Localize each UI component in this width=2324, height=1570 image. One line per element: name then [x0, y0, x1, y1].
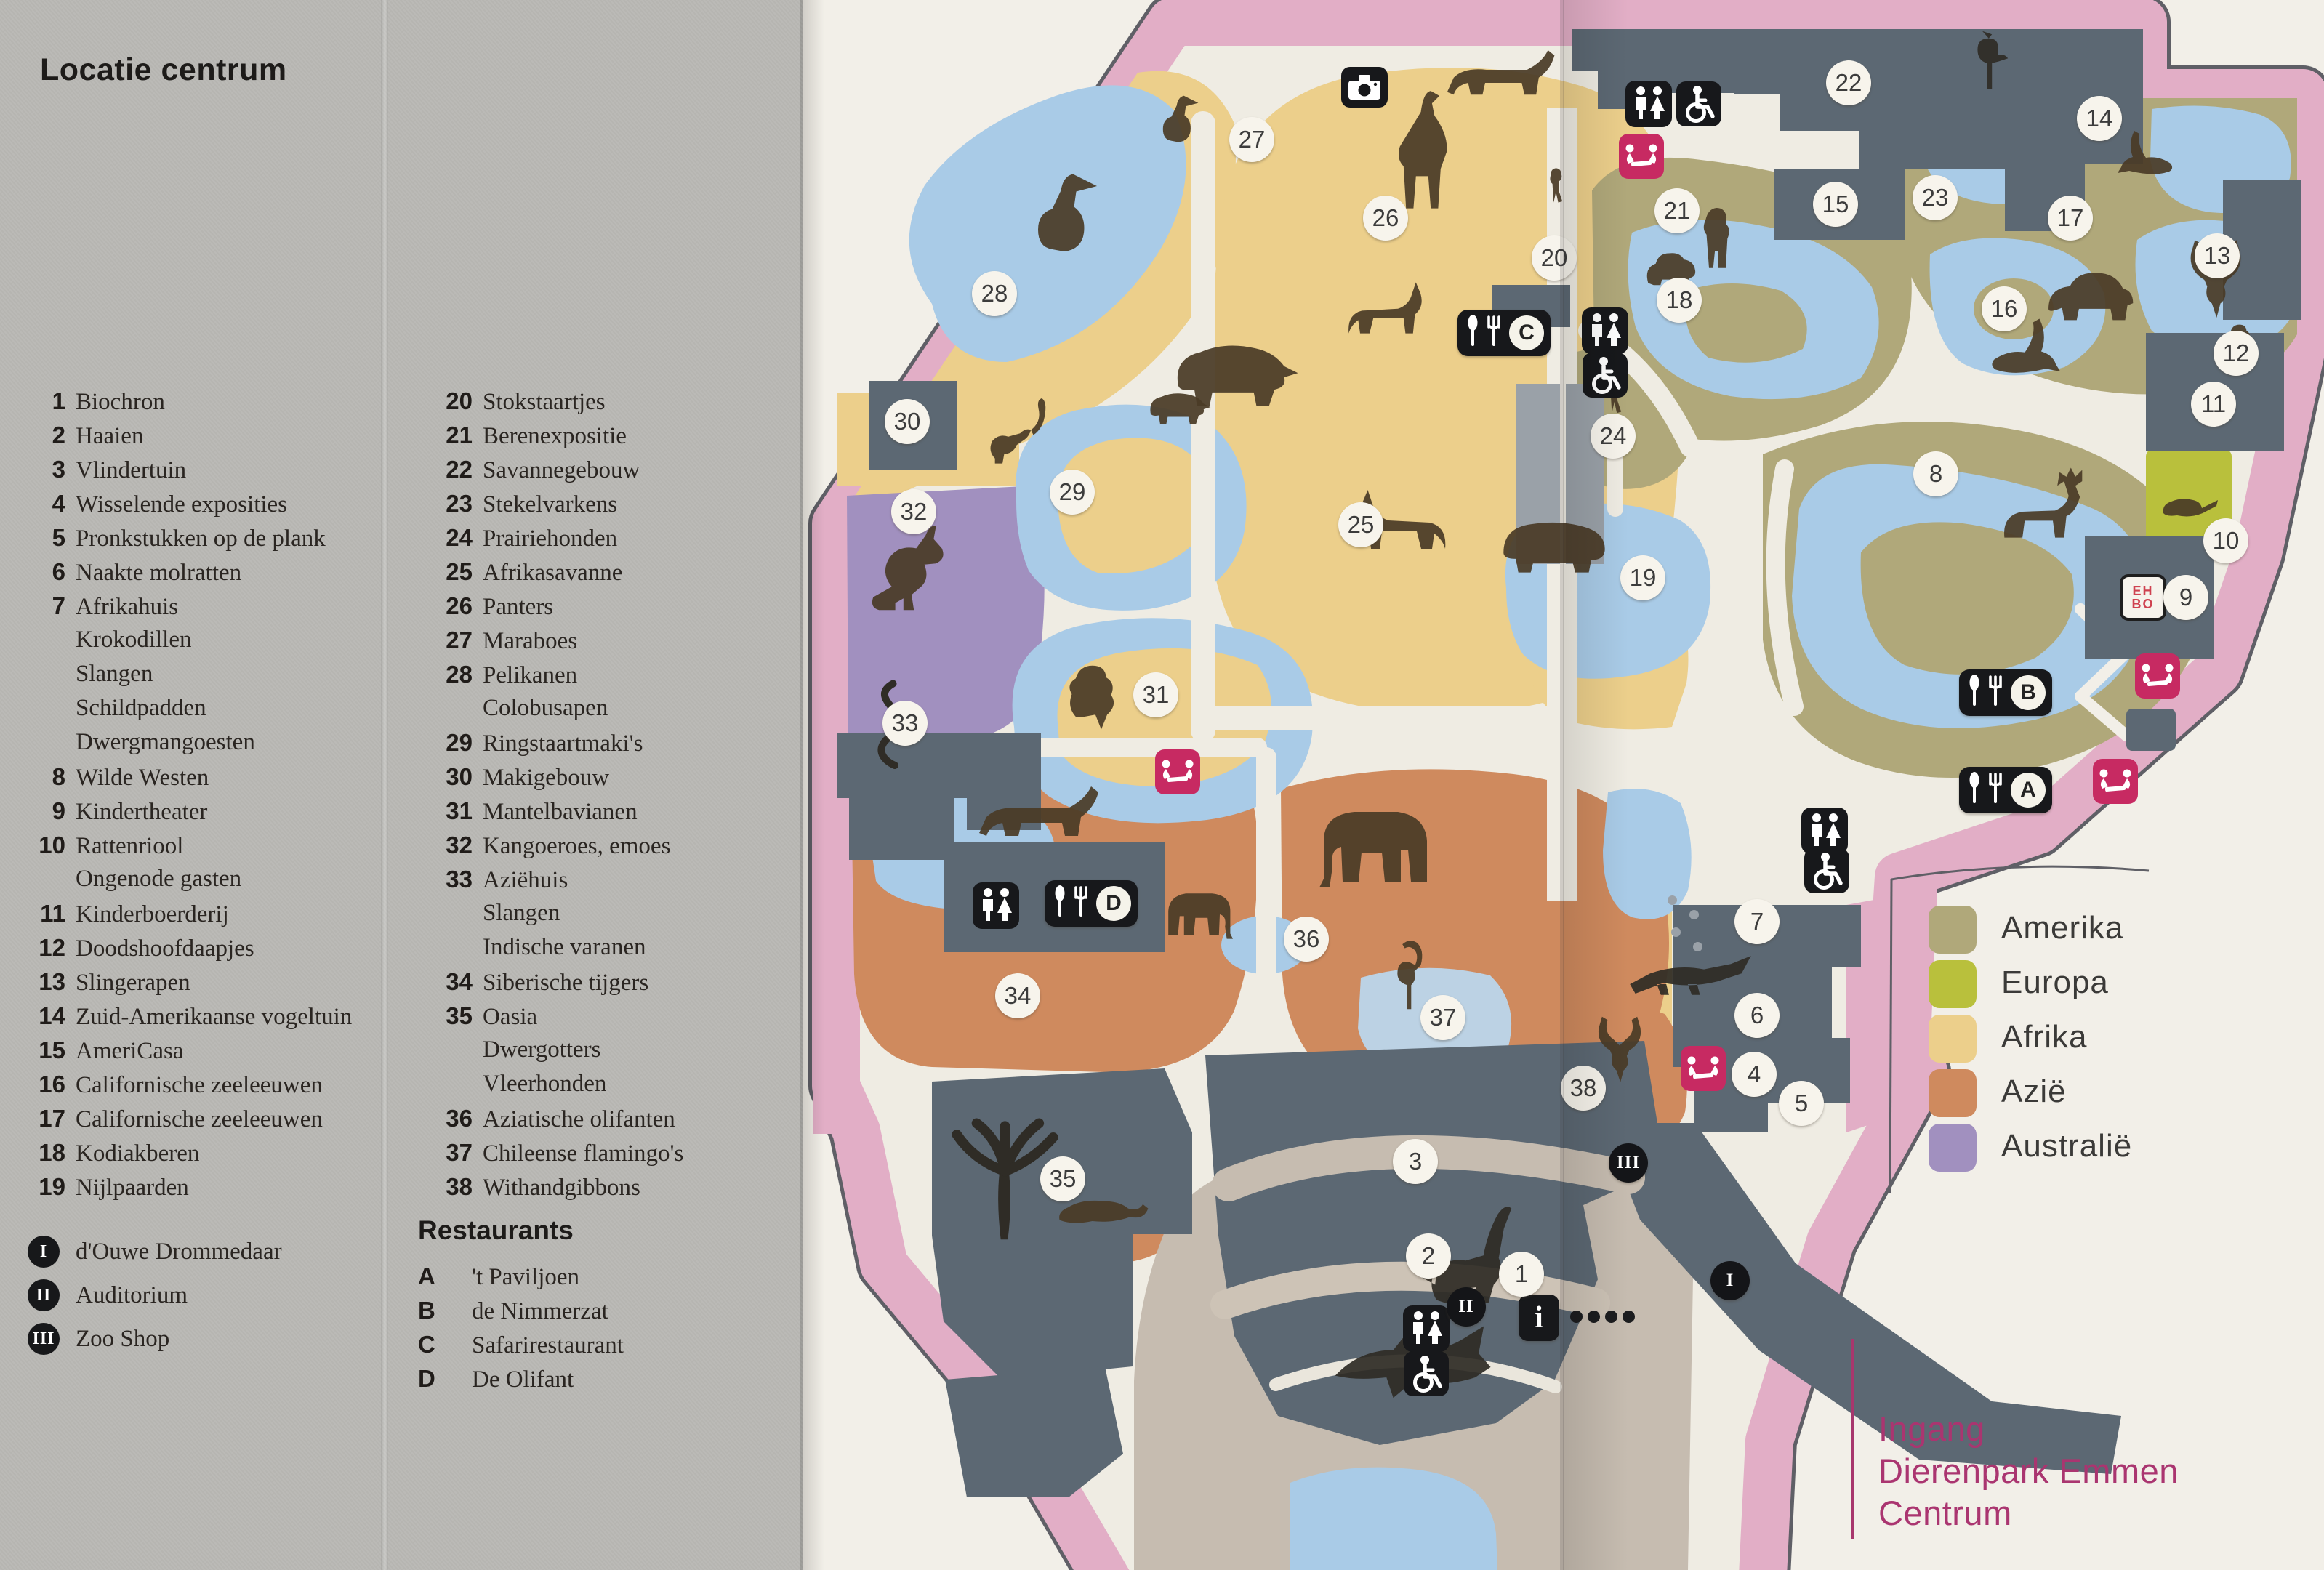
- legend-item: 1Biochron: [28, 384, 391, 418]
- map-marker-32: 32: [891, 489, 936, 534]
- continent-label: Afrika: [2001, 1019, 2087, 1055]
- map-marker-38: 38: [1561, 1066, 1606, 1111]
- legend-subitem-label: Slangen: [483, 896, 560, 930]
- entrance-text-line: Centrum: [1878, 1493, 2012, 1533]
- map-marker-29: 29: [1050, 470, 1095, 515]
- map-marker-number: 8: [1929, 460, 1942, 488]
- legend-item: 13Slingerapen: [28, 965, 391, 999]
- legend-item-number: 1: [28, 384, 65, 418]
- legend-item: 2Haaien: [28, 418, 391, 452]
- ehbo-text: EH: [2132, 584, 2153, 597]
- map-marker-number: 17: [2057, 204, 2084, 232]
- restaurant-label: Safarirestaurant: [472, 1329, 624, 1363]
- continent-label: Amerika: [2001, 910, 2123, 946]
- ehbo-text: BO: [2132, 597, 2155, 611]
- legend-item-number: 16: [28, 1067, 65, 1101]
- map-marker-number: 32: [901, 498, 928, 526]
- map-marker-number: 7: [1750, 908, 1764, 935]
- map-marker-37: 37: [1420, 995, 1465, 1040]
- map-marker-1: 1: [1499, 1252, 1544, 1297]
- legend-item-number: 37: [418, 1135, 473, 1170]
- continent-swatch-australië: [1929, 1124, 1977, 1172]
- legend-item-number: 9: [28, 794, 65, 828]
- legend-item-number: 35: [418, 999, 473, 1033]
- map-facility-marker-II: II: [1447, 1287, 1486, 1327]
- map-marker-4: 4: [1732, 1052, 1777, 1097]
- legend-item-label: Siberische tijgers: [483, 966, 648, 1000]
- legend-item-number: 2: [28, 418, 65, 452]
- legend-subitem-label: Dwergotters: [483, 1033, 601, 1067]
- legend-item: 20Stokstaartjes: [418, 384, 796, 418]
- restaurant-item: Bde Nimmerzat: [418, 1293, 624, 1327]
- map-marker-number: 26: [1372, 204, 1399, 232]
- baby-change-icon: [2135, 653, 2180, 699]
- zoo-brochure: CDBAiEHBO 123456789101112131415161718192…: [0, 0, 2324, 1570]
- stepping-stone-dot: [1689, 910, 1699, 919]
- continent-swatch-europa: [1929, 960, 1977, 1008]
- restaurant-item: A't Paviljoen: [418, 1259, 624, 1293]
- map-marker-number: 25: [1348, 511, 1375, 539]
- wheelchair-icon: [1583, 353, 1628, 398]
- legend-item-number: 12: [28, 930, 65, 965]
- map-marker-11: 11: [2191, 382, 2236, 427]
- legend-subitem: Dwergmangoesten: [28, 725, 391, 760]
- restaurants-title: Restaurants: [418, 1215, 624, 1246]
- restaurant-letter: C: [418, 1327, 451, 1361]
- map-marker-number: 37: [1430, 1004, 1457, 1031]
- toilets-icon: [1801, 808, 1848, 854]
- path-dot: [1605, 1311, 1617, 1323]
- continent-label: Azië: [2001, 1074, 2067, 1110]
- toilets-icon: [1582, 307, 1628, 354]
- baby-change-icon: [1681, 1046, 1726, 1091]
- legend-item: 28Pelikanen: [418, 657, 796, 691]
- facility-label: Zoo Shop: [76, 1326, 169, 1353]
- legend-item: 33Aziëhuis: [418, 862, 796, 896]
- restaurant-d-icon: D: [1045, 880, 1138, 927]
- map-marker-7: 7: [1734, 899, 1780, 944]
- camera-icon: [1341, 67, 1388, 108]
- legend-item: 3Vlindertuin: [28, 452, 391, 486]
- legend-item-label: Aziatische olifanten: [483, 1103, 675, 1137]
- legend-item-label: Zuid-Amerikaanse vogeltuin: [76, 1000, 352, 1034]
- legend-item: 8Wilde Westen: [28, 760, 391, 794]
- cutlery-icon: [1464, 314, 1505, 353]
- baby-change-icon: [2093, 759, 2138, 804]
- map-facility-marker-I: I: [1710, 1261, 1750, 1300]
- legend-item-label: Rattenriool: [76, 829, 183, 863]
- legend-item-number: 20: [418, 384, 473, 418]
- legend-item: 7Afrikahuis: [28, 589, 391, 623]
- legend-item-number: 33: [418, 862, 473, 896]
- info-icon: i: [1519, 1295, 1559, 1341]
- legend-column-1: 1Biochron2Haaien3Vlindertuin4Wisselende …: [28, 384, 391, 1204]
- legend-item-label: Ringstaartmaki's: [483, 727, 643, 761]
- map-facility-number: III: [1617, 1153, 1640, 1173]
- map-marker-31: 31: [1133, 672, 1178, 717]
- toilets-icon: [1625, 81, 1672, 127]
- legend-item: 37Chileense flamingo's: [418, 1135, 796, 1170]
- map-marker-18: 18: [1657, 278, 1702, 323]
- legend-item-label: Slingerapen: [76, 966, 190, 1000]
- map-marker-30: 30: [885, 399, 930, 444]
- ehbo-icon: EHBO: [2120, 574, 2166, 621]
- legend-item-label: Californische zeeleeuwen: [76, 1068, 323, 1103]
- map-marker-number: 36: [1293, 925, 1320, 953]
- toilets-icon: [1403, 1305, 1450, 1352]
- map-marker-19: 19: [1620, 555, 1665, 600]
- legend-subitem-label: Slangen: [76, 657, 153, 691]
- legend-subitem: Dwergotters: [418, 1033, 796, 1067]
- map-marker-25: 25: [1338, 502, 1383, 547]
- legend-item-label: Kindertheater: [76, 795, 207, 829]
- legend-item: 32Kangoeroes, emoes: [418, 828, 796, 862]
- map-marker-26: 26: [1363, 196, 1408, 241]
- restaurant-a-icon: A: [1959, 767, 2052, 813]
- map-marker-number: 35: [1050, 1165, 1077, 1193]
- restaurant-label: De Olifant: [472, 1363, 574, 1397]
- legend-column-2: 20Stokstaartjes21Berenexpositie22Savanne…: [418, 384, 796, 1204]
- legend-item-label: Withandgibbons: [483, 1171, 640, 1205]
- facility-roman-badge: I: [28, 1236, 60, 1268]
- legend-item: 5Pronkstukken op de plank: [28, 520, 391, 555]
- legend-item-label: Doodshoofdaapjes: [76, 932, 254, 966]
- facilities-list: Id'Ouwe DrommedaarIIAuditoriumIIIZoo Sho…: [28, 1230, 282, 1361]
- facility-item: IIAuditorium: [28, 1273, 282, 1317]
- facility-label: d'Ouwe Drommedaar: [76, 1239, 282, 1265]
- map-marker-number: 16: [1991, 295, 2018, 323]
- legend-item-label: Biochron: [76, 385, 165, 419]
- legend-item-number: 7: [28, 589, 65, 623]
- map-marker-20: 20: [1532, 235, 1577, 281]
- restaurant-letter: B: [418, 1293, 451, 1327]
- restaurant-letter: A: [418, 1259, 451, 1293]
- legend-item-number: 18: [28, 1135, 65, 1170]
- legend-item-label: Haaien: [76, 419, 143, 454]
- legend-subitem: Slangen: [28, 657, 391, 691]
- map-marker-13: 13: [2195, 233, 2240, 278]
- map-marker-number: 22: [1836, 69, 1862, 97]
- legend-item-label: Kodiakberen: [76, 1137, 199, 1171]
- map-marker-21: 21: [1654, 188, 1700, 233]
- legend-item-label: Naakte molratten: [76, 556, 241, 590]
- restaurant-letter-plate: C: [1509, 315, 1544, 350]
- legend-subitem: Slangen: [418, 896, 796, 930]
- map-marker-36: 36: [1284, 917, 1329, 962]
- legend-item-number: 10: [28, 828, 65, 862]
- facility-roman-badge: III: [28, 1323, 60, 1355]
- cutlery-icon: [1966, 674, 2006, 712]
- facility-label: Auditorium: [76, 1282, 188, 1309]
- legend-item: 15AmeriCasa: [28, 1033, 391, 1067]
- map-marker-33: 33: [882, 701, 928, 746]
- map-marker-22: 22: [1826, 60, 1871, 105]
- map-marker-number: 11: [2201, 390, 2226, 418]
- map-marker-number: 21: [1664, 197, 1691, 225]
- cutlery-icon: [1966, 771, 2006, 810]
- wheelchair-icon: [1804, 848, 1849, 893]
- legend-item-label: Panters: [483, 590, 553, 624]
- legend-subitem-label: Vleerhonden: [483, 1067, 606, 1101]
- legend-item-number: 15: [28, 1033, 65, 1067]
- map-marker-number: 33: [892, 709, 919, 737]
- map-marker-number: 10: [2213, 527, 2240, 555]
- map-marker-number: 27: [1239, 126, 1266, 153]
- map-marker-number: 24: [1600, 422, 1627, 450]
- map-marker-24: 24: [1591, 414, 1636, 459]
- continent-swatch-amerika: [1929, 906, 1977, 954]
- legend-item-number: 4: [28, 486, 65, 520]
- legend-subitem-label: Ongenode gasten: [76, 862, 241, 896]
- baby-change-icon: [1155, 749, 1200, 794]
- legend-item: 10Rattenriool: [28, 828, 391, 862]
- legend-item: 17Californische zeeleeuwen: [28, 1101, 391, 1135]
- legend-item: 25Afrikasavanne: [418, 555, 796, 589]
- legend-item-label: AmeriCasa: [76, 1034, 183, 1068]
- path-dot: [1570, 1311, 1583, 1323]
- legend-item-label: Wilde Westen: [76, 761, 209, 795]
- map-marker-6: 6: [1734, 993, 1780, 1038]
- restaurant-letter-plate: D: [1096, 886, 1131, 921]
- map-marker-5: 5: [1779, 1081, 1824, 1126]
- legend-item: 18Kodiakberen: [28, 1135, 391, 1170]
- map-marker-number: 19: [1630, 564, 1657, 592]
- map-marker-number: 34: [1005, 982, 1032, 1010]
- legend-item: 35Oasia: [418, 999, 796, 1033]
- facility-item: Id'Ouwe Drommedaar: [28, 1230, 282, 1273]
- map-marker-number: 31: [1143, 681, 1170, 709]
- map-marker-8: 8: [1913, 451, 1958, 496]
- map-marker-3: 3: [1393, 1139, 1438, 1184]
- legend-subitem-label: Dwergmangoesten: [76, 725, 255, 760]
- legend-item-label: Kangoeroes, emoes: [483, 829, 670, 863]
- continent-swatch-azië: [1929, 1069, 1977, 1117]
- legend-item-number: 14: [28, 999, 65, 1033]
- map-marker-number: 9: [2179, 584, 2192, 611]
- legend-panel: Locatie centrum 1Biochron2Haaien3Vlinder…: [0, 0, 803, 1570]
- map-marker-28: 28: [972, 271, 1017, 316]
- restaurant-letter: D: [418, 1361, 451, 1396]
- legend-item-number: 22: [418, 452, 473, 486]
- restaurant-label: de Nimmerzat: [472, 1295, 608, 1329]
- map-marker-10: 10: [2203, 518, 2248, 563]
- cutlery-icon: [1051, 885, 1092, 923]
- legend-item-label: Makigebouw: [483, 761, 609, 795]
- stepping-stone-dot: [1671, 927, 1681, 937]
- map-marker-number: 23: [1922, 184, 1949, 212]
- legend-item-number: 34: [418, 965, 473, 999]
- legend-item: 34Siberische tijgers: [418, 965, 796, 999]
- legend-subitem: Colobusapen: [418, 691, 796, 725]
- legend-item: 30Makigebouw: [418, 760, 796, 794]
- map-marker-number: 18: [1666, 286, 1693, 314]
- map-marker-number: 5: [1795, 1090, 1808, 1117]
- legend-item: 29Ringstaartmaki's: [418, 725, 796, 760]
- map-marker-number: 20: [1541, 244, 1568, 272]
- legend-item-label: Stokstaartjes: [483, 385, 606, 419]
- map-marker-number: 1: [1515, 1260, 1528, 1288]
- map-marker-number: 38: [1570, 1074, 1597, 1102]
- map-marker-number: 29: [1059, 478, 1086, 506]
- map-marker-number: 13: [2204, 242, 2231, 270]
- map-marker-35: 35: [1040, 1156, 1085, 1201]
- legend-item-number: 36: [418, 1101, 473, 1135]
- map-facility-number: I: [1726, 1271, 1734, 1291]
- map-marker-27: 27: [1229, 117, 1274, 162]
- legend-item: 26Panters: [418, 589, 796, 623]
- map-marker-34: 34: [995, 973, 1040, 1018]
- map-marker-number: 30: [894, 408, 921, 435]
- legend-subitem-label: Krokodillen: [76, 623, 191, 657]
- legend-item-label: Maraboes: [483, 624, 577, 659]
- map-facility-number: II: [1458, 1297, 1473, 1317]
- legend-item-label: Stekelvarkens: [483, 488, 617, 522]
- continent-label: Europa: [2001, 965, 2109, 1001]
- restaurant-label: 't Paviljoen: [472, 1260, 579, 1295]
- legend-item-label: Nijlpaarden: [76, 1171, 189, 1205]
- legend-item: 9Kindertheater: [28, 794, 391, 828]
- legend-item: 27Maraboes: [418, 623, 796, 657]
- legend-item-number: 28: [418, 657, 473, 691]
- restaurant-c-icon: C: [1457, 310, 1551, 356]
- map-marker-9: 9: [2163, 575, 2208, 620]
- map-marker-number: 12: [2223, 339, 2250, 367]
- legend-subitem-label: Indische varanen: [483, 930, 646, 965]
- legend-item: 24Prairiehonden: [418, 520, 796, 555]
- map-marker-2: 2: [1406, 1233, 1451, 1279]
- map-marker-12: 12: [2214, 331, 2259, 376]
- legend-item: 12Doodshoofdaapjes: [28, 930, 391, 965]
- map-marker-16: 16: [1982, 286, 2027, 331]
- legend-item: 22Savannegebouw: [418, 452, 796, 486]
- facility-item: IIIZoo Shop: [28, 1317, 282, 1361]
- map-marker-number: 14: [2086, 105, 2113, 132]
- stepping-stone-dot: [1693, 942, 1702, 951]
- legend-item-label: Pronkstukken op de plank: [76, 522, 326, 556]
- legend-item-number: 32: [418, 828, 473, 862]
- legend-item-label: Afrikahuis: [76, 590, 178, 624]
- legend-item: 11Kinderboerderij: [28, 896, 391, 930]
- legend-item-number: 6: [28, 555, 65, 589]
- legend-item: 14Zuid-Amerikaanse vogeltuin: [28, 999, 391, 1033]
- legend-item-number: 26: [418, 589, 473, 623]
- legend-subitem-label: Schildpadden: [76, 691, 206, 725]
- map-marker-17: 17: [2048, 196, 2093, 241]
- restaurant-item: DDe Olifant: [418, 1361, 624, 1396]
- entrance-text-line: Ingang: [1878, 1409, 1985, 1449]
- legend-item-label: Mantelbavianen: [483, 795, 638, 829]
- legend-item-number: 31: [418, 794, 473, 828]
- legend-item-label: Aziëhuis: [483, 863, 568, 898]
- map-facility-marker-III: III: [1609, 1143, 1648, 1183]
- legend-item-number: 11: [28, 896, 65, 930]
- entrance-pointer-line: [1851, 1339, 1854, 1539]
- legend-item-label: Wisselende exposities: [76, 488, 287, 522]
- restaurants-list: Restaurants A't PaviljoenBde NimmerzatCS…: [418, 1215, 624, 1396]
- legend-item-label: Oasia: [483, 1000, 537, 1034]
- map-marker-number: 4: [1748, 1060, 1761, 1088]
- legend-subitem: Vleerhonden: [418, 1067, 796, 1101]
- legend-item-number: 29: [418, 725, 473, 760]
- legend-item-label: Kinderboerderij: [76, 898, 229, 932]
- legend-item-number: 19: [28, 1170, 65, 1204]
- legend-item: 6Naakte molratten: [28, 555, 391, 589]
- legend-subitem: Krokodillen: [28, 623, 391, 657]
- legend-item: 19Nijlpaarden: [28, 1170, 391, 1204]
- map-marker-number: 3: [1409, 1148, 1422, 1175]
- legend-item-label: Pelikanen: [483, 659, 577, 693]
- legend-item: 21Berenexpositie: [418, 418, 796, 452]
- baby-change-icon: [1619, 134, 1664, 179]
- legend-item-number: 13: [28, 965, 65, 999]
- legend-subitem: Schildpadden: [28, 691, 391, 725]
- legend-item: 31Mantelbavianen: [418, 794, 796, 828]
- wheelchair-icon: [1676, 81, 1721, 126]
- legend-item-number: 24: [418, 520, 473, 555]
- legend-item-label: Afrikasavanne: [483, 556, 622, 590]
- map-marker-number: 6: [1750, 1002, 1764, 1029]
- path-dot: [1623, 1311, 1635, 1323]
- restaurant-item: CSafarirestaurant: [418, 1327, 624, 1361]
- legend-item-number: 17: [28, 1101, 65, 1135]
- stepping-stone-dot: [1668, 895, 1677, 905]
- restaurant-b-icon: B: [1959, 669, 2052, 716]
- facility-roman-badge: II: [28, 1279, 60, 1311]
- legend-subitem: Indische varanen: [418, 930, 796, 965]
- continent-label: Australië: [2001, 1128, 2132, 1164]
- map-marker-23: 23: [1913, 175, 1958, 220]
- map-marker-14: 14: [2077, 96, 2122, 141]
- path-dot: [1588, 1311, 1600, 1323]
- map-marker-number: 15: [1822, 190, 1849, 218]
- legend-item-number: 27: [418, 623, 473, 657]
- legend-item-label: Vlindertuin: [76, 454, 186, 488]
- legend-item-label: Chileense flamingo's: [483, 1137, 683, 1171]
- legend-item-number: 30: [418, 760, 473, 794]
- wheelchair-icon: [1404, 1351, 1449, 1396]
- map-marker-number: 2: [1422, 1242, 1435, 1270]
- legend-item: 16Californische zeeleeuwen: [28, 1067, 391, 1101]
- continent-swatch-afrika: [1929, 1015, 1977, 1063]
- legend-item: 4Wisselende exposities: [28, 486, 391, 520]
- legend-item: 23Stekelvarkens: [418, 486, 796, 520]
- legend-item-label: Californische zeeleeuwen: [76, 1103, 323, 1137]
- legend-item-number: 8: [28, 760, 65, 794]
- toilets-icon: [973, 882, 1019, 929]
- page-title: Locatie centrum: [40, 52, 287, 88]
- legend-item-number: 38: [418, 1170, 473, 1204]
- legend-item-label: Berenexpositie: [483, 419, 627, 454]
- map-marker-number: 28: [981, 280, 1008, 307]
- legend-item: 36Aziatische olifanten: [418, 1101, 796, 1135]
- map-marker-15: 15: [1813, 182, 1858, 227]
- legend-subitem-label: Colobusapen: [483, 691, 608, 725]
- restaurant-letter-plate: B: [2011, 675, 2046, 710]
- legend-item-number: 3: [28, 452, 65, 486]
- legend-item-number: 23: [418, 486, 473, 520]
- entrance-text-line: Dierenpark Emmen: [1878, 1451, 2179, 1491]
- legend-item-number: 5: [28, 520, 65, 555]
- legend-item: 38Withandgibbons: [418, 1170, 796, 1204]
- restaurant-letter-plate: A: [2011, 773, 2046, 808]
- legend-item-number: 21: [418, 418, 473, 452]
- legend-item-label: Prairiehonden: [483, 522, 617, 556]
- legend-subitem: Ongenode gasten: [28, 862, 391, 896]
- legend-item-number: 25: [418, 555, 473, 589]
- legend-item-label: Savannegebouw: [483, 454, 640, 488]
